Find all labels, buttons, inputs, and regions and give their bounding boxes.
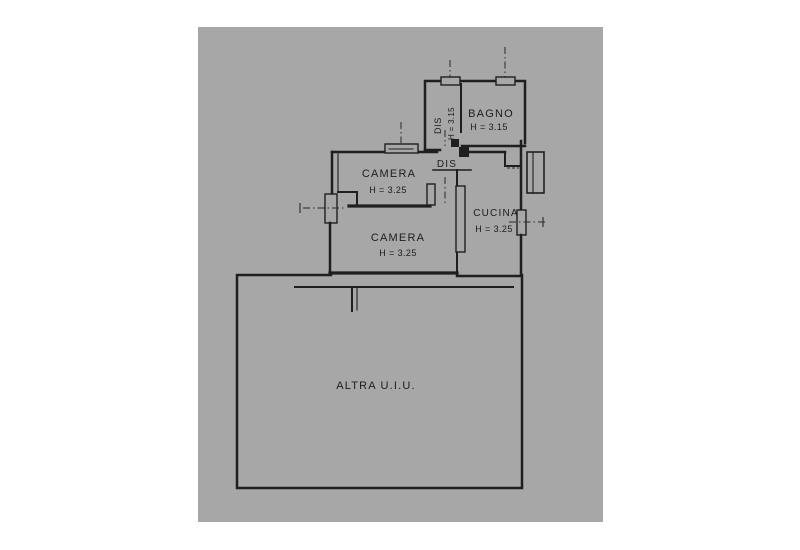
room-height-cucina: H = 3.25 [475,224,512,234]
bagno-window-icon [496,77,515,85]
room-label-camera-top: CAMERA [362,168,416,180]
room-label-bagno: BAGNO [468,108,514,120]
room-label-cucina: CUCINA [473,208,519,219]
room-height-camera-main: H = 3.25 [379,248,416,258]
room-label-dis-hall: DIS [437,159,457,170]
cucina-door-leaf-icon [456,186,465,252]
room-height-dis-closet: H = 3.15 [447,107,456,140]
floor-plan-drawing: BAGNO H = 3.15 DIS H = 3.15 CAMERA H = 3… [0,0,800,550]
room-label-dis-closet: DIS [433,117,443,134]
hall-door-leaf-icon [427,184,435,205]
room-label-altra-uiu: ALTRA U.I.U. [336,380,416,392]
room-label-camera-main: CAMERA [371,232,425,244]
bagno-window-icon [441,77,460,85]
scanned-floor-plan-page: BAGNO H = 3.15 DIS H = 3.15 CAMERA H = 3… [0,0,800,550]
room-height-camera-top: H = 3.25 [369,185,406,195]
room-height-bagno: H = 3.15 [470,122,507,132]
